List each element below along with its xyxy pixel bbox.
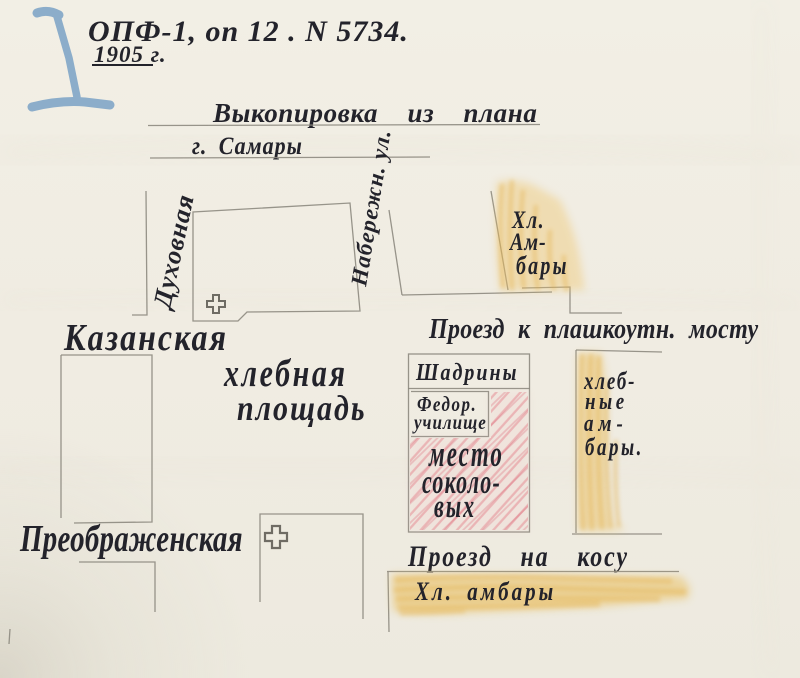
svg-text:г. Самары: г. Самары <box>192 133 303 161</box>
svg-text:Преображенская: Преображенская <box>19 518 243 559</box>
svg-text:Проезд к плашкоутн. мосту: Проезд к плашкоутн. мосту <box>428 312 758 345</box>
svg-text:бары.: бары. <box>585 432 644 460</box>
svg-text:Казанская: Казанская <box>63 317 228 359</box>
svg-text:Выкопировка из плана: Выкопировка из плана <box>212 98 537 128</box>
svg-text:вых: вых <box>434 489 476 525</box>
svg-text:Хл. амбары: Хл. амбары <box>414 578 556 607</box>
svg-text:Шадрины: Шадрины <box>415 358 518 385</box>
svg-text:1905 г.: 1905 г. <box>94 42 167 67</box>
svg-text:площадь: площадь <box>237 388 367 428</box>
svg-text:Проезд на косу: Проезд на косу <box>407 539 629 572</box>
svg-text:училище: училище <box>412 412 487 435</box>
svg-text:бары: бары <box>516 252 569 281</box>
